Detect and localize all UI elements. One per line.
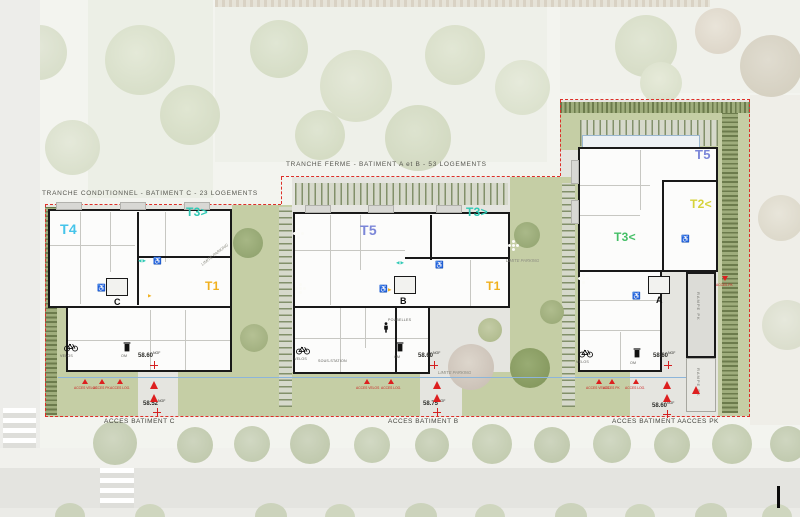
level-cross-icon	[430, 361, 438, 369]
access-triangle	[99, 379, 105, 384]
tree	[295, 110, 345, 160]
access-triangle	[117, 379, 123, 384]
tree	[448, 344, 494, 390]
partition	[640, 150, 641, 210]
tree	[234, 426, 270, 462]
tree	[640, 62, 682, 104]
tree	[415, 428, 449, 462]
access-triangle	[633, 379, 639, 384]
trash-icon	[123, 341, 131, 352]
tree	[593, 425, 631, 463]
partition	[68, 340, 230, 341]
boundary-line	[281, 177, 282, 204]
trash-icon	[396, 341, 404, 352]
wheelchair-icon: ♿	[435, 262, 444, 269]
room-label-poubelles: POUBELLES	[388, 318, 411, 322]
level-cross-icon	[664, 361, 672, 369]
partition	[295, 250, 405, 251]
wheelchair-icon: ♿	[632, 293, 641, 300]
tree	[240, 324, 268, 352]
entry-arrows-icon: ◀▶	[138, 259, 147, 264]
access-triangle	[82, 379, 88, 384]
parking-ramp	[686, 272, 716, 358]
access-triangle-large	[433, 381, 441, 389]
partition	[580, 215, 640, 216]
room-label-velos: VELOS	[576, 360, 589, 364]
tree	[495, 60, 550, 115]
hedge-row	[215, 0, 710, 7]
boundary-line	[281, 176, 560, 177]
entry-arrow-icon: ▶	[148, 294, 152, 299]
room-label-velos: VELOS	[294, 357, 307, 361]
balcony	[571, 200, 579, 224]
elevation-c-entry: 58.60NGF	[138, 352, 160, 359]
access-label-batiment-c: ACCES BATIMENT C	[104, 418, 175, 425]
tree	[425, 25, 485, 85]
wheelchair-icon: ♿	[153, 258, 162, 265]
room-label-velos: VELOS	[60, 354, 73, 358]
tranche-conditionnel-title: TRANCHE CONDITIONNEL - BATIMENT C - 23 L…	[42, 190, 258, 197]
unit-label-c-t3: T3>	[186, 206, 208, 218]
access-label-batiment-b: ACCES BATIMENT B	[388, 418, 459, 425]
tree	[45, 120, 100, 175]
unit-wall	[430, 215, 432, 260]
tree	[354, 427, 390, 463]
access-triangle-large	[150, 381, 158, 389]
unit-label-a-t2: T2<	[690, 198, 712, 210]
sidewalk-bottom-2	[0, 508, 800, 517]
stair-core-a	[648, 276, 670, 294]
entry-arrow-icon: ▶	[388, 288, 392, 293]
building-b-wing	[293, 306, 430, 374]
picnic-table-icon	[582, 277, 585, 280]
hedge-a-top	[560, 102, 750, 113]
unit-label-c-t4: T4	[60, 222, 77, 236]
access-triangle-large	[663, 381, 671, 389]
wheelchair-icon: ♿	[681, 236, 690, 243]
access-triangle-large	[692, 386, 700, 394]
access-triangle	[596, 379, 602, 384]
stair-core-b	[394, 276, 416, 294]
partition	[80, 212, 81, 304]
unit-label-b-t1: T1	[486, 280, 501, 292]
level-cross-icon	[153, 408, 161, 416]
road-left	[0, 0, 40, 465]
unit-wall	[662, 180, 664, 270]
parking-row-b-north	[295, 183, 508, 205]
site-plan: RAMPE PK RAMPE PK T4 T3> T1 T5 T3> T1 T5…	[0, 0, 800, 517]
partition	[470, 260, 471, 306]
crosswalk-bottom	[100, 468, 134, 508]
hedge-a-east	[722, 113, 738, 413]
balcony	[571, 160, 579, 184]
entry-arrows-icon: ◀▶	[396, 261, 405, 266]
access-triangle-label: ACCES VELOS	[356, 387, 379, 391]
level-cross-icon	[433, 408, 441, 416]
tree	[478, 318, 502, 342]
unit-label-b-t3: T3>	[466, 206, 488, 218]
tree	[320, 50, 392, 122]
access-label-pk: ACCES PK	[682, 418, 719, 425]
tree	[233, 228, 263, 258]
unit-label-a-t5: T5	[695, 148, 711, 161]
unit-label-a-t3: T3<	[614, 231, 636, 243]
tree	[250, 20, 308, 78]
room-label-om: OM	[394, 355, 400, 359]
boundary-line	[560, 100, 561, 176]
unit-wall	[405, 257, 508, 259]
tree	[472, 424, 512, 464]
picnic-table-icon	[512, 244, 515, 247]
boundary-line	[749, 99, 750, 417]
tranche-ferme-title: TRANCHE FERME - BATIMENT A et B - 53 LOG…	[286, 161, 487, 168]
picnic-table-icon	[297, 232, 300, 235]
limite-parking-label: LIMITE PARKING	[506, 258, 539, 263]
access-triangle-large	[663, 394, 671, 402]
parking-ramp-lower	[686, 358, 716, 412]
core-label-a: A	[656, 296, 663, 305]
access-triangle-large	[150, 394, 158, 402]
level-cross-icon	[663, 410, 671, 418]
partition	[330, 215, 331, 305]
ramp-label: RAMPE PK	[696, 292, 701, 321]
unit-label-b-t5: T5	[360, 223, 377, 237]
unit-label-c-t1: T1	[205, 280, 220, 292]
room-label-sous-station: SOUS-STATION	[318, 359, 347, 363]
core-label-b: B	[400, 297, 407, 306]
wheelchair-icon: ♿	[97, 285, 106, 292]
level-cross-icon	[150, 361, 158, 369]
access-triangle-label: ACCES LOG.	[625, 387, 645, 391]
tree	[712, 424, 752, 464]
neighbor-parcel	[750, 95, 800, 425]
limite-parking-label: LIMITE PARKING	[438, 370, 471, 375]
boundary-line	[45, 204, 46, 416]
tree	[695, 8, 741, 54]
tree	[534, 427, 570, 463]
partition	[580, 300, 660, 301]
parking-limit-line	[58, 377, 716, 378]
balcony	[120, 202, 146, 210]
partition	[50, 245, 135, 246]
tree	[540, 300, 564, 324]
person-icon	[383, 322, 389, 333]
access-triangle-label: ACCES LOG.	[381, 387, 401, 391]
tree	[654, 427, 690, 463]
tree	[105, 25, 175, 95]
picnic-table-icon	[299, 287, 302, 290]
tree	[740, 35, 800, 97]
tree	[770, 426, 800, 462]
building-c-wing	[66, 306, 232, 372]
balcony	[368, 205, 394, 213]
tree	[758, 195, 800, 241]
tree	[510, 348, 550, 388]
bike-icon	[296, 345, 310, 355]
boundary-line	[45, 416, 750, 417]
tree	[93, 421, 137, 465]
balcony	[56, 202, 82, 210]
balcony	[305, 205, 331, 213]
tree	[514, 222, 540, 248]
ramp-access-triangle	[722, 276, 728, 281]
partition	[110, 212, 111, 272]
scale-tick	[777, 486, 780, 508]
access-triangle-label: ACCES PK	[93, 387, 110, 391]
partition	[165, 212, 166, 262]
elevation-b-entry: 58.60NGF	[418, 352, 440, 359]
elevation-a-entry: 58.60NGF	[653, 352, 675, 359]
wheelchair-icon: ♿	[379, 286, 388, 293]
unit-wall	[662, 180, 716, 182]
partition	[620, 332, 621, 370]
elevation-a-street: 58.60NGF	[652, 402, 674, 409]
partition	[295, 338, 428, 339]
tree	[177, 427, 213, 463]
access-triangle-label: ACCES PK	[603, 387, 620, 391]
stair-core-c	[106, 278, 128, 296]
partition	[365, 308, 366, 348]
room-label-om: OM	[630, 361, 636, 365]
room-label-om: OM	[121, 354, 127, 358]
access-triangle	[609, 379, 615, 384]
balcony	[436, 205, 462, 213]
access-triangle-label: ACCES LOG.	[110, 387, 130, 391]
core-label-c: C	[114, 298, 121, 307]
bike-icon	[579, 348, 593, 358]
access-triangle	[388, 379, 394, 384]
access-label-batiment-a: ACCES BATIMENT A	[612, 418, 682, 425]
access-triangle-large	[433, 394, 441, 402]
crosswalk-left	[3, 408, 36, 452]
tree	[290, 424, 330, 464]
boundary-line	[560, 99, 750, 100]
trash-icon	[633, 347, 641, 358]
partition	[580, 330, 660, 331]
access-triangle	[364, 379, 370, 384]
tree	[160, 85, 220, 145]
bike-icon	[64, 342, 78, 352]
ramp-access-label: ACCES PK	[716, 284, 733, 288]
